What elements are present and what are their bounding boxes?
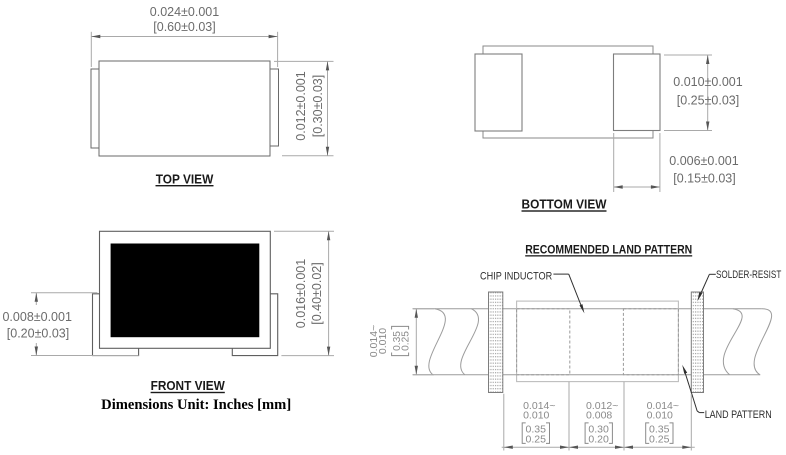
svg-text:0.010: 0.010 <box>523 409 549 421</box>
svg-text:[0.30±0.03]: [0.30±0.03] <box>311 75 325 137</box>
svg-text:0.25: 0.25 <box>526 434 547 446</box>
svg-text:FRONT VIEW: FRONT VIEW <box>151 379 225 393</box>
svg-text:0.008±0.001: 0.008±0.001 <box>2 310 71 324</box>
svg-text:0.016±0.001: 0.016±0.001 <box>294 259 308 328</box>
svg-text:TOP VIEW: TOP VIEW <box>156 173 214 187</box>
svg-text:SOLDER-RESIST: SOLDER-RESIST <box>716 269 781 281</box>
svg-text:[0.60±0.03]: [0.60±0.03] <box>153 20 215 34</box>
svg-text:0.012±0.001: 0.012±0.001 <box>294 71 308 140</box>
svg-text:0.25: 0.25 <box>649 434 670 446</box>
svg-text:0.008: 0.008 <box>586 409 612 421</box>
svg-text:BOTTOM VIEW: BOTTOM VIEW <box>522 198 607 212</box>
svg-text:0.010±0.001: 0.010±0.001 <box>673 75 742 89</box>
svg-text:[0.25±0.03]: [0.25±0.03] <box>677 94 739 108</box>
svg-text:Dimensions Unit: Inches [mm]: Dimensions Unit: Inches [mm] <box>101 397 291 413</box>
svg-text:0.010: 0.010 <box>377 328 389 354</box>
svg-text:0.25: 0.25 <box>401 331 412 351</box>
svg-text:0.006±0.001: 0.006±0.001 <box>669 154 738 168</box>
svg-text:[0.20±0.03]: [0.20±0.03] <box>7 327 69 341</box>
svg-text:RECOMMENDED LAND PATTERN: RECOMMENDED LAND PATTERN <box>525 243 692 257</box>
svg-text:0.20: 0.20 <box>588 434 609 446</box>
svg-text:LAND PATTERN: LAND PATTERN <box>705 409 772 421</box>
svg-text:0.010: 0.010 <box>647 409 673 421</box>
svg-text:[0.15±0.03]: [0.15±0.03] <box>673 172 735 186</box>
svg-text:CHIP INDUCTOR: CHIP INDUCTOR <box>480 270 552 282</box>
svg-text:[0.40±0.02]: [0.40±0.02] <box>310 262 324 324</box>
svg-text:0.024±0.001: 0.024±0.001 <box>150 5 219 19</box>
